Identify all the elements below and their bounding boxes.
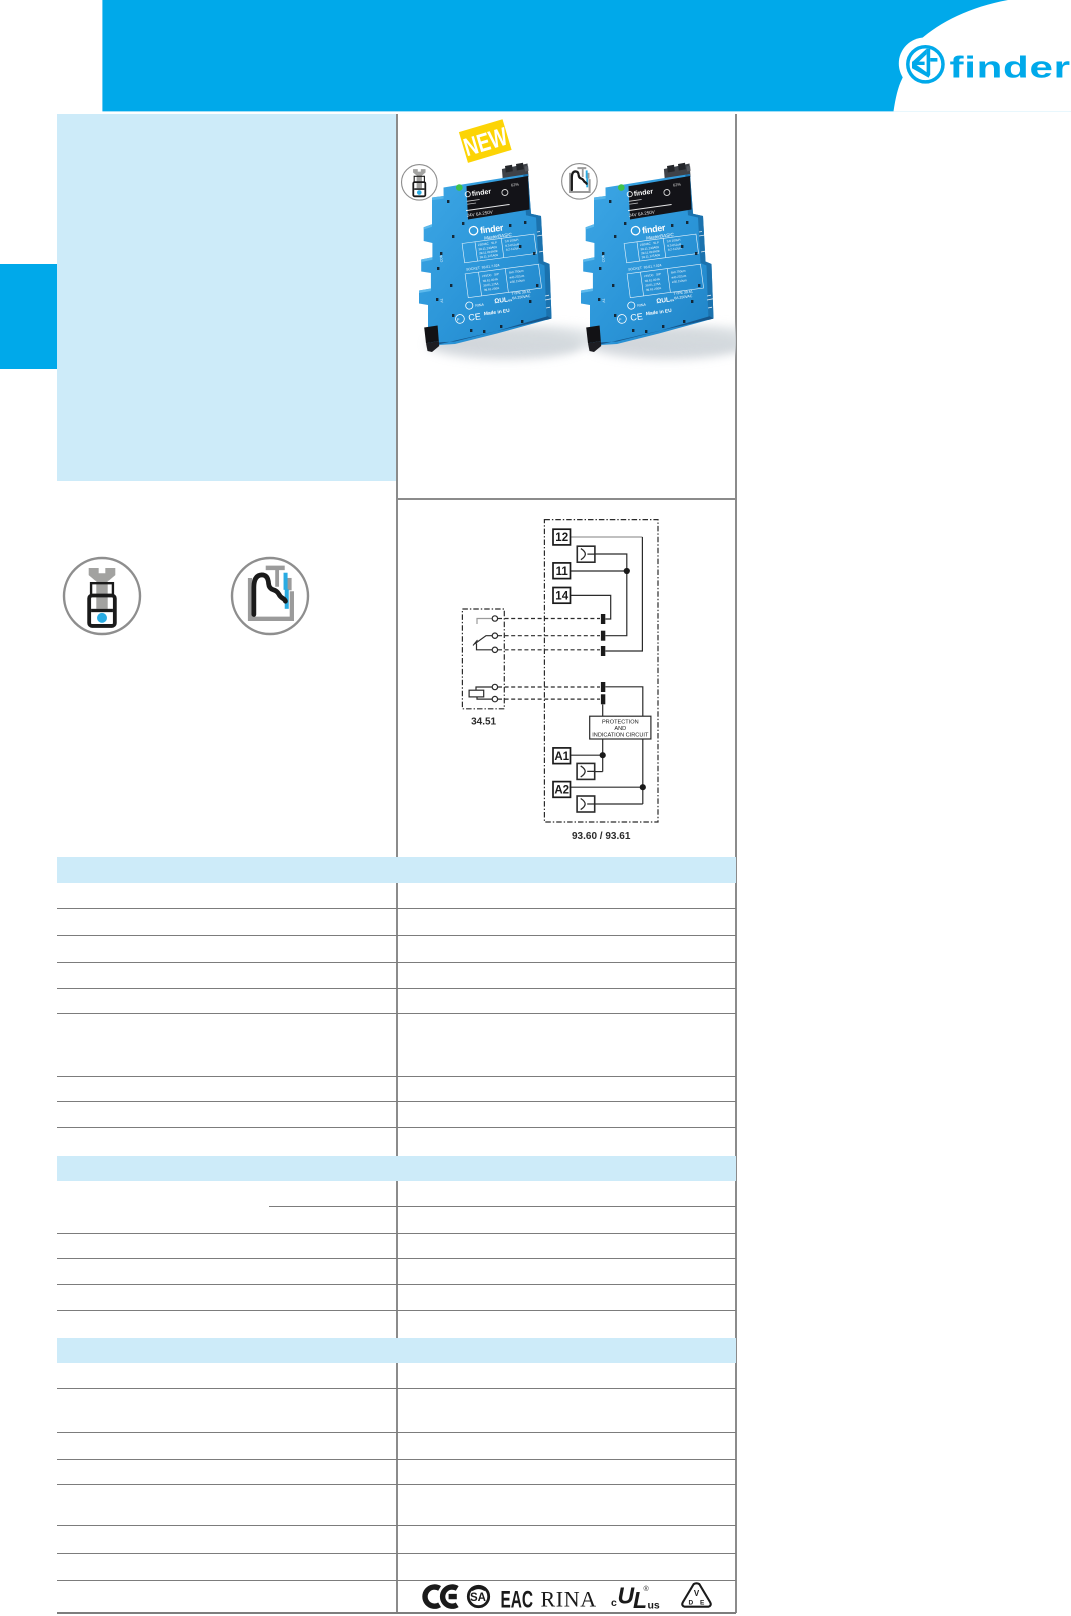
svg-text:EAC: EAC xyxy=(501,1586,534,1613)
svg-text:AND: AND xyxy=(614,726,626,732)
svg-text:®: ® xyxy=(644,1585,650,1593)
svg-text:93.60 / 93.61: 93.60 / 93.61 xyxy=(572,831,631,842)
svg-text:INDICATION CIRCUIT: INDICATION CIRCUIT xyxy=(592,733,649,739)
svg-text:14: 14 xyxy=(555,591,568,603)
svg-text:A1: A1 xyxy=(554,751,569,763)
svg-text:RINA: RINA xyxy=(541,1587,597,1612)
svg-text:11: 11 xyxy=(556,566,569,578)
svg-text:E: E xyxy=(700,1600,705,1607)
svg-text:34.51: 34.51 xyxy=(471,717,496,728)
svg-text:V: V xyxy=(694,1589,700,1598)
svg-text:D: D xyxy=(688,1600,693,1607)
svg-text:PROTECTION: PROTECTION xyxy=(602,720,639,726)
svg-text:finder: finder xyxy=(950,50,1071,84)
svg-text:NEW: NEW xyxy=(460,122,511,162)
svg-text:12: 12 xyxy=(555,532,568,544)
svg-text:A2: A2 xyxy=(554,785,569,797)
svg-text:us: us xyxy=(648,1600,660,1612)
svg-text:SA: SA xyxy=(470,1592,486,1604)
svg-text:c: c xyxy=(611,1597,617,1609)
